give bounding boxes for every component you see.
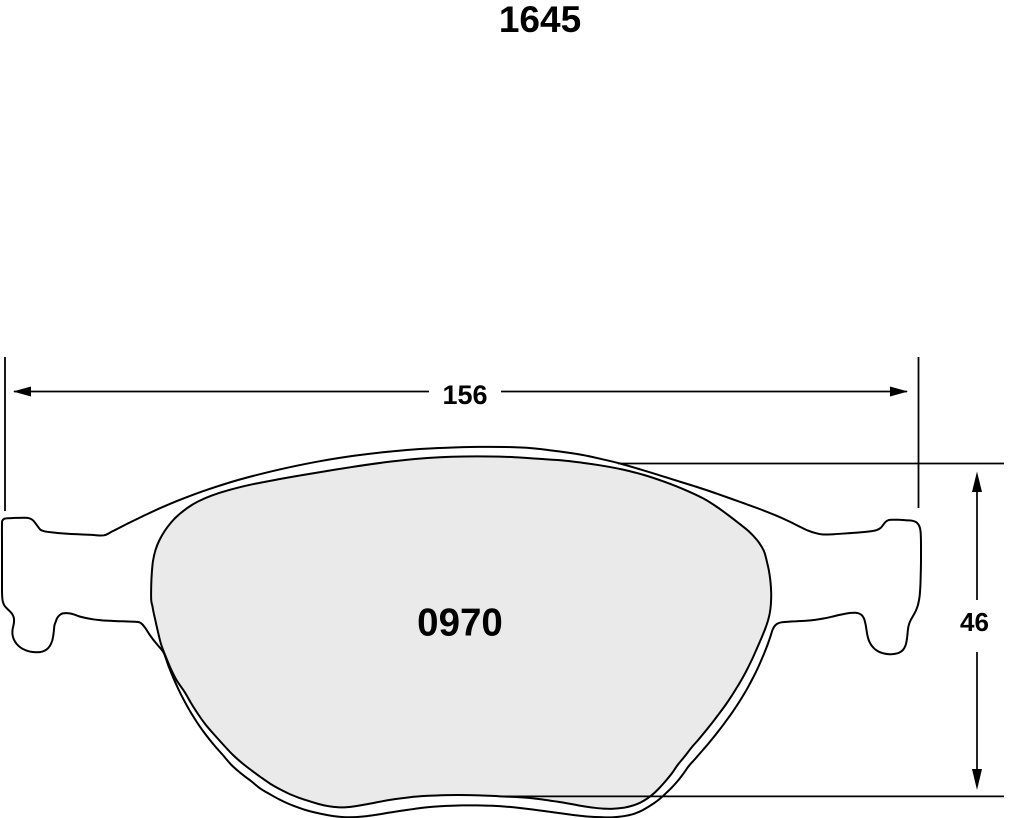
svg-text:156: 156	[442, 380, 487, 410]
svg-text:0970: 0970	[417, 602, 503, 645]
svg-text:1645: 1645	[499, 0, 581, 40]
svg-text:46: 46	[960, 607, 989, 637]
